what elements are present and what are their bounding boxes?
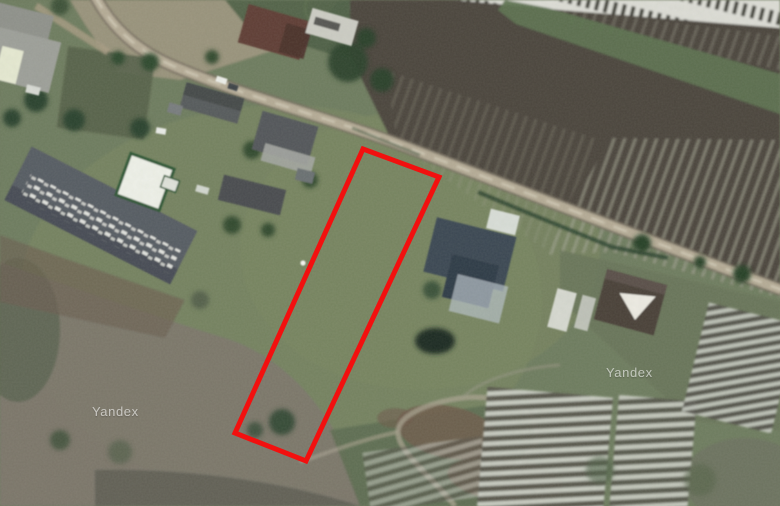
- yandex-watermark: Yandex: [606, 365, 653, 380]
- terrain-mottling: [0, 0, 780, 506]
- yandex-watermark: Yandex: [92, 404, 139, 419]
- map-canvas: Yandex Yandex: [0, 0, 780, 506]
- satellite-map-view[interactable]: Yandex Yandex: [0, 0, 780, 506]
